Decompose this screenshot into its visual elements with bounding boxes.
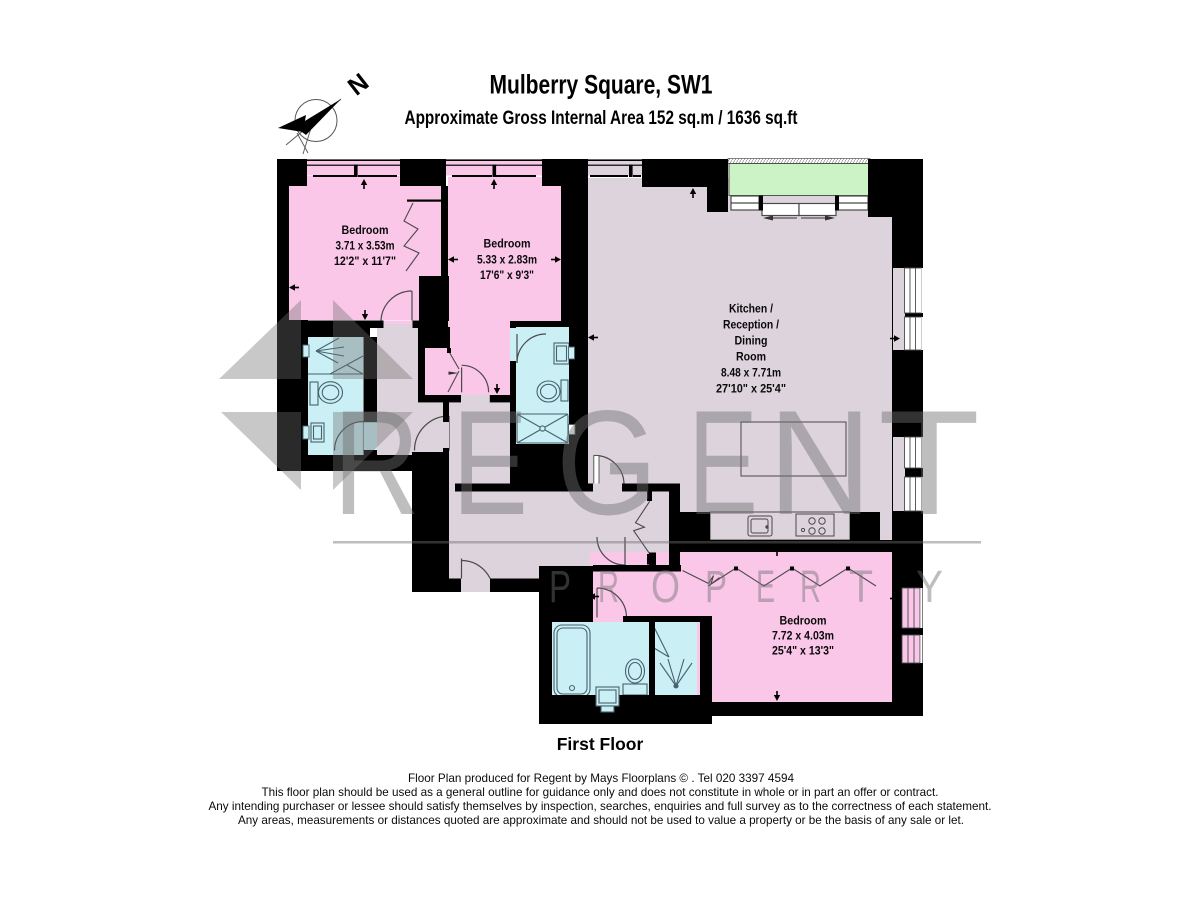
svg-text:E: E — [452, 379, 528, 546]
svg-text:Y: Y — [916, 561, 943, 612]
svg-text:17'6" x 9'3": 17'6" x 9'3" — [480, 268, 534, 282]
svg-text:This floor plan should be used: This floor plan should be used as a gene… — [262, 786, 939, 799]
svg-text:P: P — [549, 561, 571, 612]
svg-text:First Floor: First Floor — [557, 734, 644, 754]
svg-text:E: E — [688, 379, 758, 546]
svg-text:Floor Plan produced for Regent: Floor Plan produced for Regent by Mays F… — [408, 772, 795, 785]
svg-text:Mulberry Square, SW1: Mulberry Square, SW1 — [490, 70, 713, 100]
svg-text:R: R — [598, 561, 619, 612]
svg-text:8.48 x 7.71m: 8.48 x 7.71m — [721, 366, 781, 380]
svg-text:25'4" x 13'3": 25'4" x 13'3" — [772, 644, 834, 658]
svg-text:Dining: Dining — [735, 334, 768, 348]
svg-text:Bedroom: Bedroom — [484, 237, 531, 251]
svg-text:Bedroom: Bedroom — [342, 223, 389, 237]
svg-text:7.72 x 4.03m: 7.72 x 4.03m — [772, 629, 834, 643]
svg-text:5.33 x 2.83m: 5.33 x 2.83m — [477, 253, 537, 267]
svg-text:P: P — [705, 561, 727, 612]
svg-text:O: O — [651, 561, 680, 612]
svg-text:N: N — [768, 379, 872, 546]
svg-text:R: R — [333, 379, 420, 546]
svg-text:Reception /: Reception / — [723, 318, 780, 332]
svg-text:E: E — [756, 561, 775, 612]
svg-text:G: G — [556, 379, 658, 546]
svg-text:3.71 x 3.53m: 3.71 x 3.53m — [336, 239, 395, 253]
svg-text:Approximate Gross Internal Are: Approximate Gross Internal Area 152 sq.m… — [405, 108, 799, 129]
svg-text:27'10" x 25'4": 27'10" x 25'4" — [716, 382, 786, 396]
svg-text:T: T — [849, 561, 873, 612]
svg-text:R: R — [800, 561, 821, 612]
svg-text:T: T — [878, 379, 980, 546]
svg-text:12'2" x 11'7": 12'2" x 11'7" — [334, 254, 396, 268]
svg-text:Any intending purchaser or les: Any intending purchaser or lessee should… — [209, 800, 992, 813]
svg-text:Room: Room — [736, 350, 766, 364]
svg-text:Bedroom: Bedroom — [780, 614, 827, 628]
svg-text:Any areas, measurements or dis: Any areas, measurements or distances quo… — [238, 814, 964, 827]
svg-text:Kitchen /: Kitchen / — [729, 302, 774, 316]
